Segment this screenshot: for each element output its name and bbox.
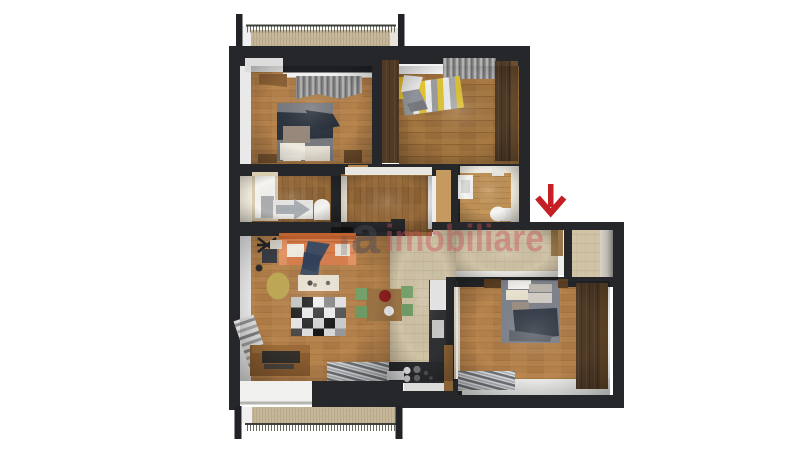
svg-text:a: a xyxy=(351,207,381,265)
svg-text:imobiliare: imobiliare xyxy=(385,218,544,260)
